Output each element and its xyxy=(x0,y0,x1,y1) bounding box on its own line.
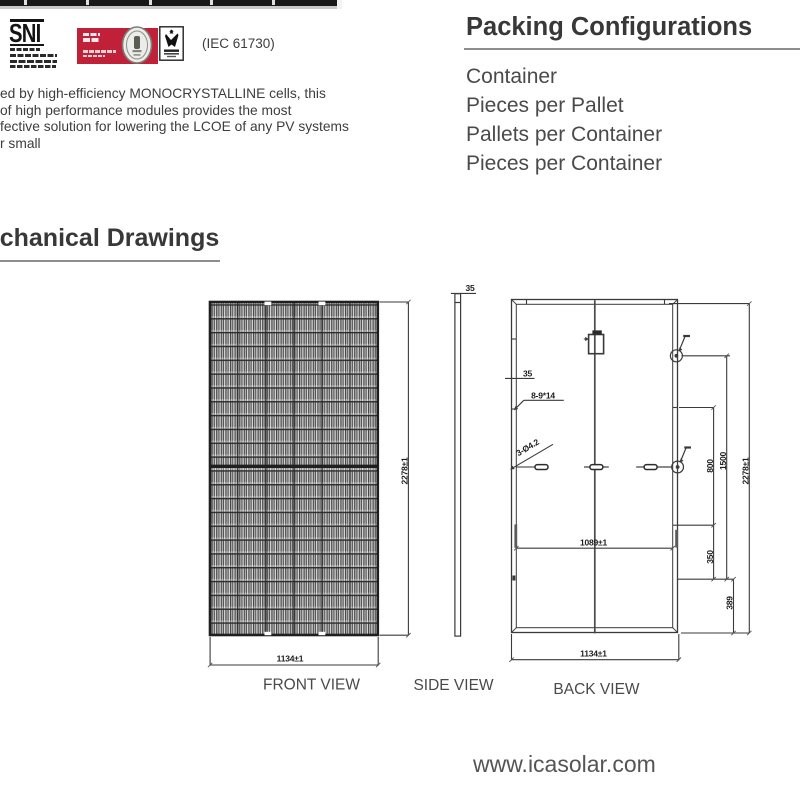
svg-text:2278±1: 2278±1 xyxy=(400,457,410,485)
svg-text:1134±1: 1134±1 xyxy=(580,649,607,659)
svg-text:FRONT VIEW: FRONT VIEW xyxy=(263,677,360,694)
svg-text:BACK VIEW: BACK VIEW xyxy=(553,681,639,698)
svg-text:389: 389 xyxy=(725,596,735,610)
svg-text:35: 35 xyxy=(523,369,533,379)
svg-text:8-9*14: 8-9*14 xyxy=(531,390,555,400)
svg-text:350: 350 xyxy=(705,550,715,564)
svg-text:1500: 1500 xyxy=(718,451,728,470)
svg-text:SIDE VIEW: SIDE VIEW xyxy=(413,677,493,694)
svg-text:2278±1: 2278±1 xyxy=(741,457,751,485)
svg-text:35: 35 xyxy=(465,283,475,293)
svg-text:1134±1: 1134±1 xyxy=(277,654,304,664)
svg-text:800: 800 xyxy=(705,459,715,473)
svg-text:1089±1: 1089±1 xyxy=(580,538,608,548)
